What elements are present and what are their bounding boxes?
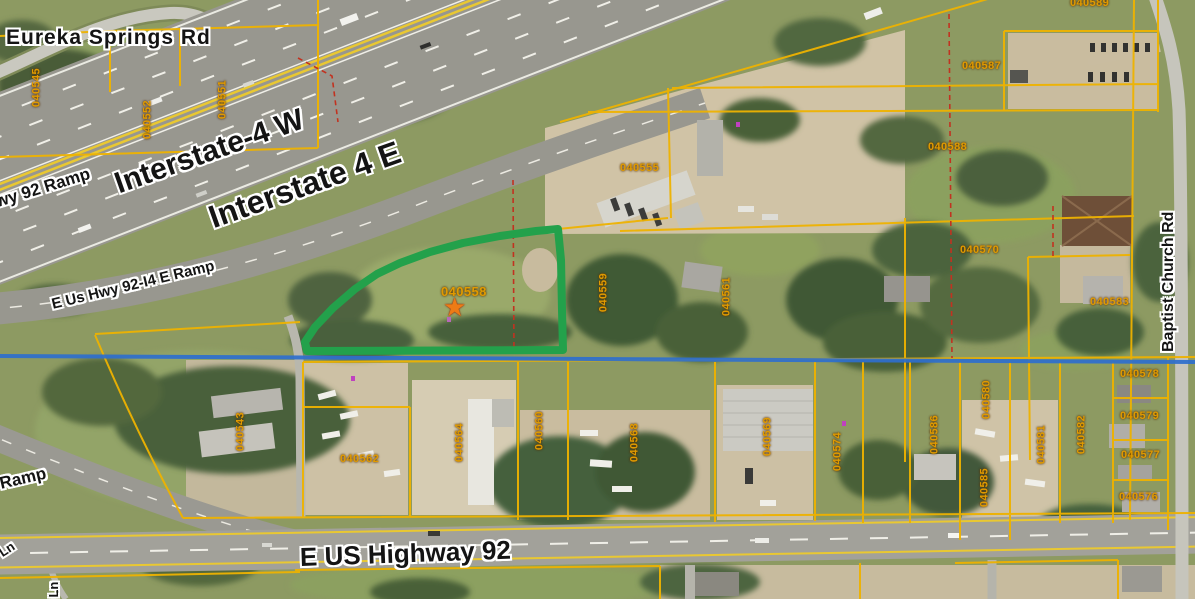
parcel-label-040587: 040587	[962, 60, 1001, 73]
parcel-label-040562: 040562	[340, 453, 379, 466]
parcel-label-040570: 040570	[960, 244, 999, 257]
parcel-label-040576: 040576	[1119, 491, 1158, 504]
parcel-label-040589: 040589	[1070, 0, 1109, 10]
parcel-label-040577: 040577	[1121, 449, 1160, 462]
aerial-map-canvas[interactable]: Eureka Springs Rd Interstate-4 W Interst…	[0, 0, 1195, 599]
parcel-label-040555: 040555	[620, 162, 659, 175]
parcel-label-040574: 040574	[832, 424, 845, 480]
parcel-label-040580: 040580	[981, 372, 994, 428]
road-label-baptist-church-rd: Baptist Church Rd	[1160, 212, 1178, 352]
parcel-label-040545: 040545	[31, 60, 44, 116]
parcel-label-040543: 040543	[235, 404, 248, 460]
road-label-ja-ln-fragment: ja Ln	[46, 582, 61, 599]
parcel-label-040582: 040582	[1076, 407, 1089, 463]
parcel-label-040560: 040560	[534, 403, 547, 459]
parcel-label-040586: 040586	[929, 407, 942, 463]
parcel-label-040552: 040552	[142, 92, 155, 148]
parcel-label-040583: 040583	[1090, 296, 1129, 309]
parcel-label-040588: 040588	[928, 141, 967, 154]
parcel-label-040578: 040578	[1120, 368, 1159, 381]
star-marker-icon: ★	[443, 294, 466, 320]
parcel-label-040581: 040581	[1036, 417, 1049, 473]
parcel-label-040579: 040579	[1120, 410, 1159, 423]
road-label-eureka-springs: Eureka Springs Rd	[6, 26, 211, 50]
parcel-label-040564: 040564	[454, 415, 467, 471]
parcel-label-040551: 040551	[217, 72, 230, 128]
parcel-label-040559: 040559	[598, 265, 611, 321]
parcel-label-040568: 040568	[629, 415, 642, 471]
parcel-label-040561: 040561	[721, 269, 734, 325]
parcel-label-040585: 040585	[979, 460, 992, 516]
parcel-label-040569: 040569	[762, 409, 775, 465]
